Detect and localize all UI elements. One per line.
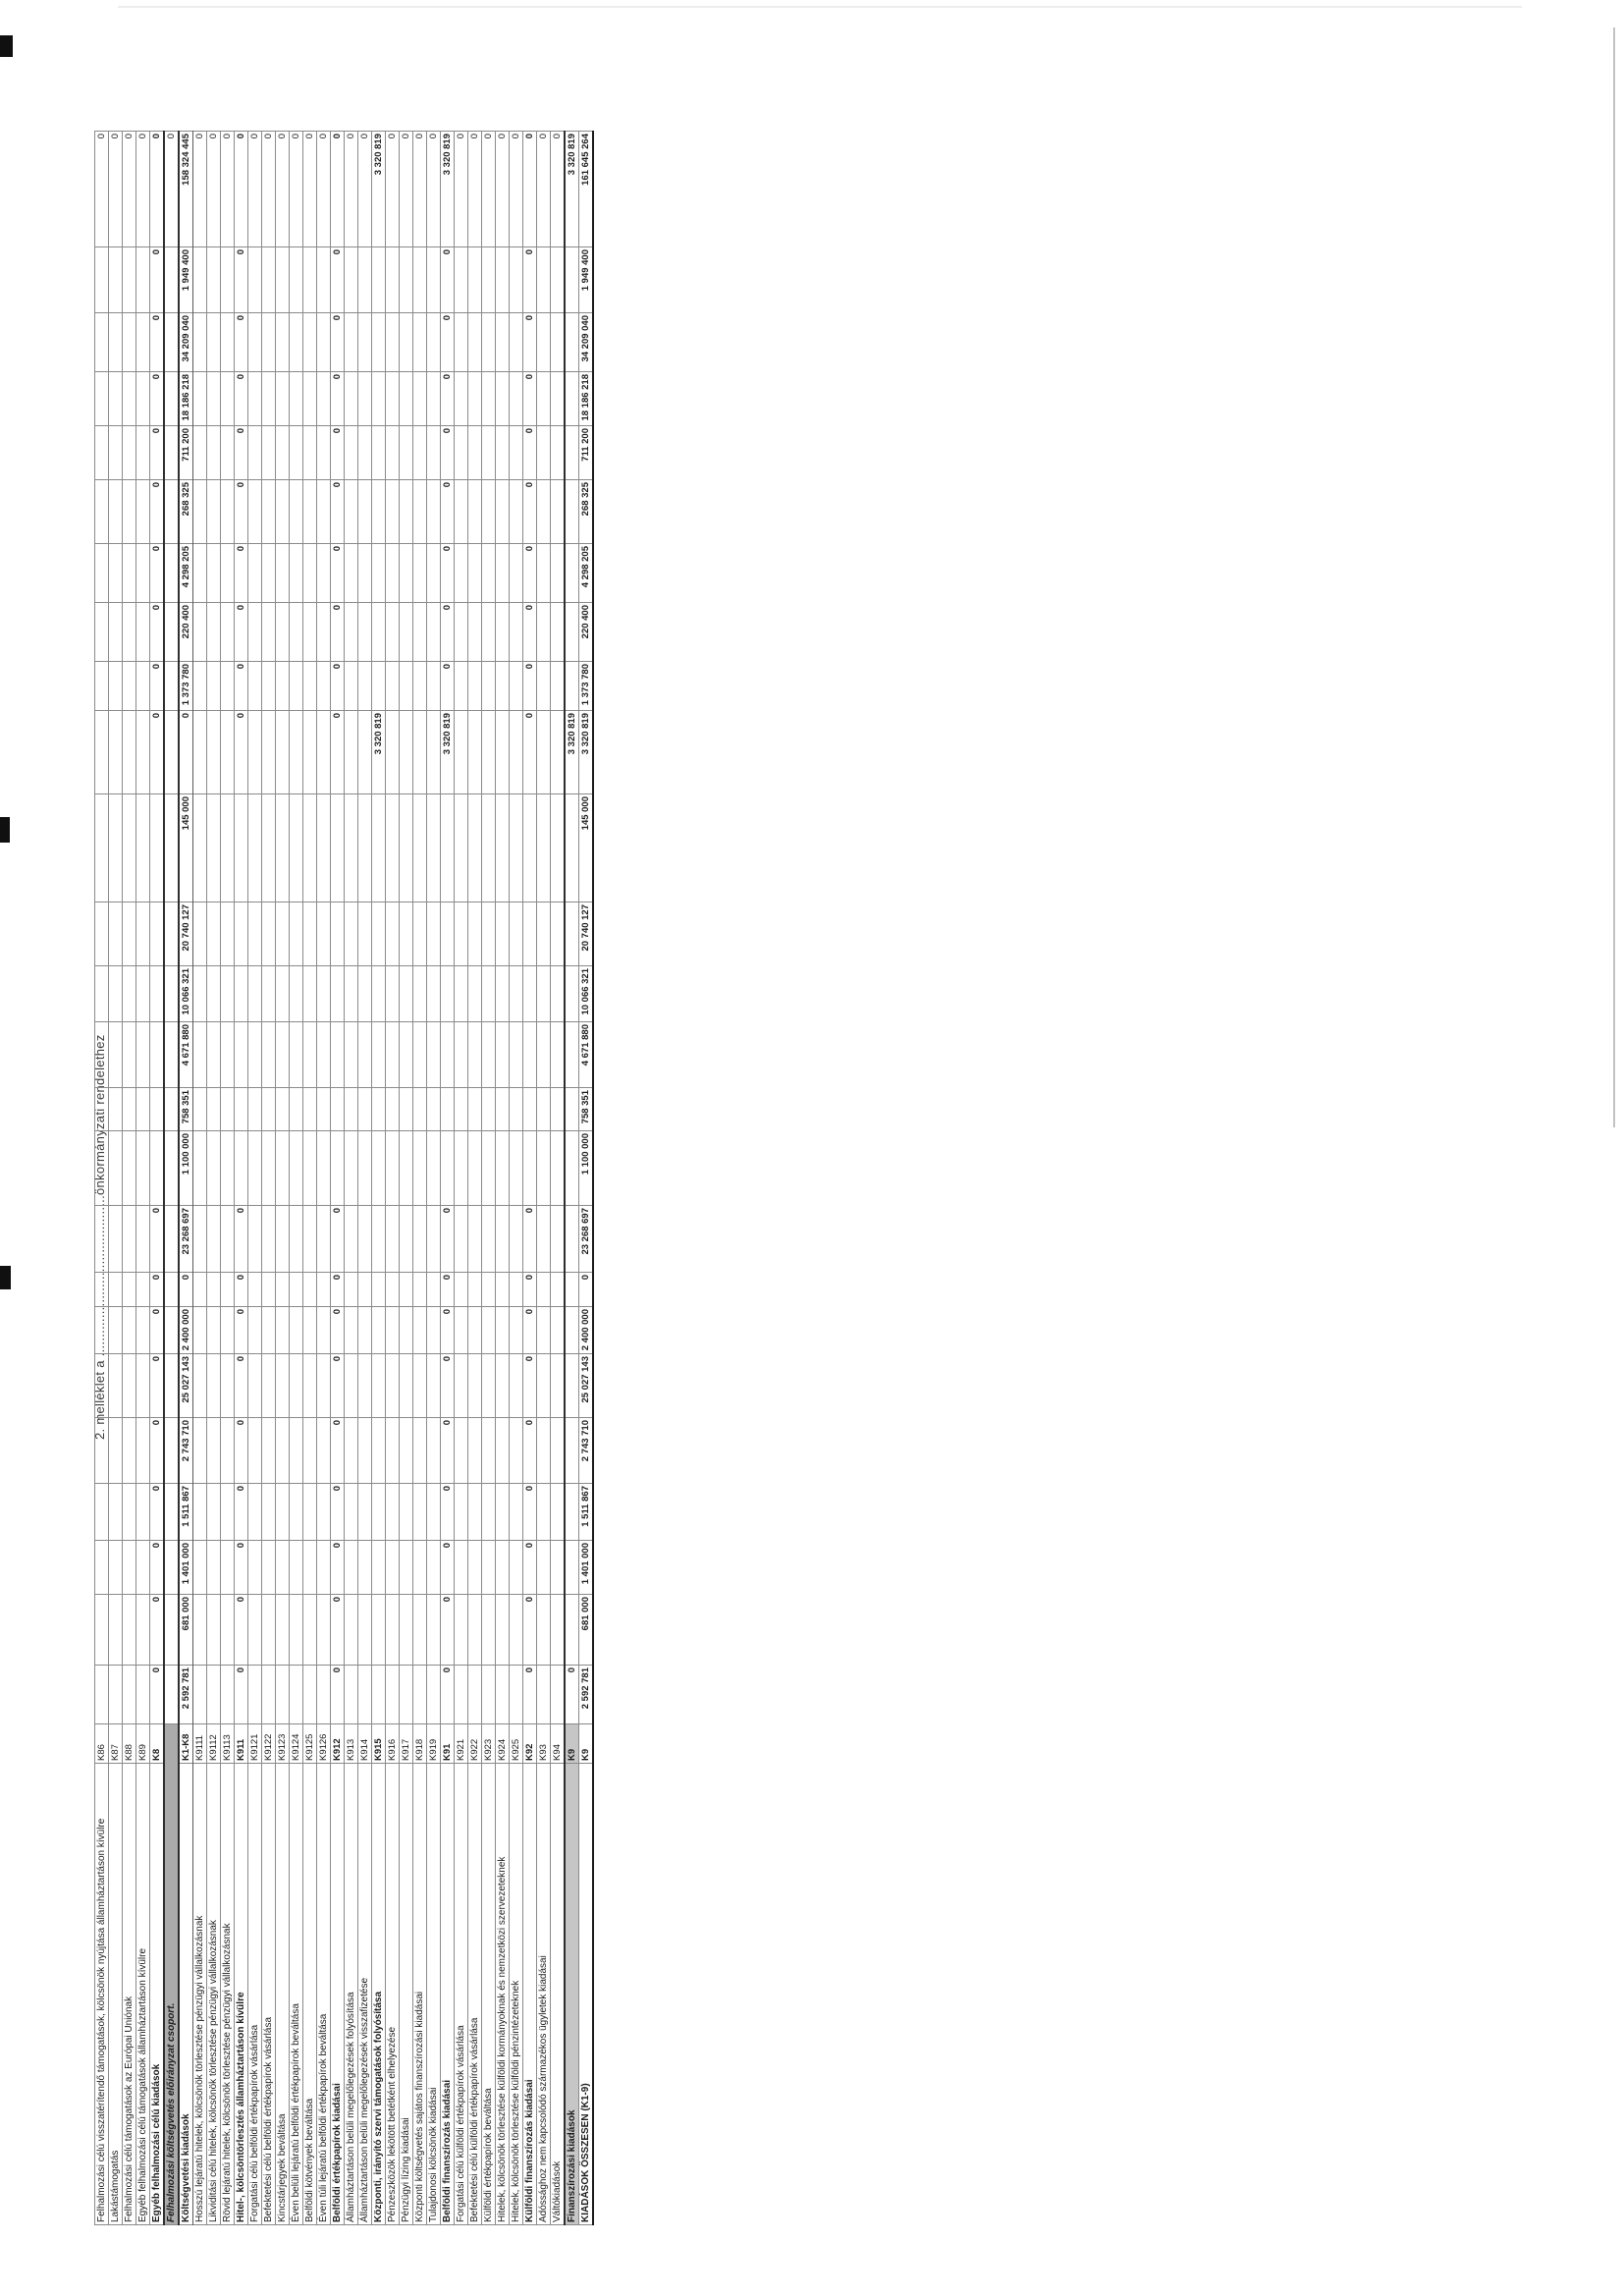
amount-cell bbox=[372, 1206, 386, 1273]
amount-cell: 2 743 710 bbox=[179, 1418, 193, 1484]
amount-cell bbox=[537, 662, 551, 711]
amount-cell bbox=[95, 372, 109, 426]
amount-cell bbox=[248, 1354, 262, 1418]
amount-cell bbox=[482, 794, 496, 902]
amount-cell bbox=[136, 372, 150, 426]
row-total-cell: 0 bbox=[551, 132, 566, 247]
amount-cell bbox=[455, 1666, 468, 1724]
amount-cell bbox=[164, 313, 179, 372]
amount-cell bbox=[386, 1541, 400, 1595]
amount-cell bbox=[496, 1484, 510, 1541]
amount-cell bbox=[468, 426, 482, 480]
amount-cell bbox=[193, 902, 207, 966]
amount-cell bbox=[358, 480, 372, 544]
amount-cell bbox=[109, 1273, 123, 1307]
amount-cell bbox=[193, 1541, 207, 1595]
row-code: K921 bbox=[455, 1724, 468, 1764]
amount-cell: 145 000 bbox=[579, 794, 594, 902]
amount-cell bbox=[468, 1273, 482, 1307]
row-label: Államháztartáson belüli megelőlegezések … bbox=[345, 1764, 358, 2225]
table-row: Finanszírozási kiadásokK903 320 8193 320… bbox=[565, 132, 579, 2225]
amount-cell bbox=[193, 603, 207, 662]
amount-cell bbox=[468, 247, 482, 313]
amount-cell bbox=[537, 1131, 551, 1206]
amount-cell bbox=[510, 603, 523, 662]
amount-cell bbox=[109, 313, 123, 372]
row-label: Befektetési célú belföldi értékpapírok v… bbox=[262, 1764, 276, 2225]
amount-cell bbox=[427, 662, 441, 711]
amount-cell bbox=[248, 711, 262, 794]
amount-cell bbox=[95, 1484, 109, 1541]
amount-cell bbox=[551, 1418, 566, 1484]
amount-cell bbox=[317, 1541, 331, 1595]
amount-cell bbox=[537, 1088, 551, 1131]
amount-cell: 0 bbox=[235, 711, 248, 794]
amount-cell bbox=[248, 1088, 262, 1131]
table-row: Felhalmozási költségvetés előirányzat cs… bbox=[164, 132, 179, 2225]
row-code: K917 bbox=[400, 1724, 413, 1764]
amount-cell bbox=[386, 1131, 400, 1206]
amount-cell bbox=[551, 794, 566, 902]
amount-cell bbox=[386, 544, 400, 603]
amount-cell bbox=[317, 1088, 331, 1131]
amount-cell bbox=[207, 1354, 221, 1418]
amount-cell bbox=[262, 1206, 276, 1273]
amount-cell bbox=[207, 1088, 221, 1131]
amount-cell bbox=[276, 1273, 290, 1307]
amount-cell bbox=[358, 662, 372, 711]
amount-cell bbox=[262, 1273, 276, 1307]
amount-cell bbox=[317, 1273, 331, 1307]
amount-cell bbox=[345, 1088, 358, 1131]
amount-cell bbox=[551, 544, 566, 603]
amount-cell bbox=[496, 603, 510, 662]
amount-cell bbox=[276, 711, 290, 794]
amount-cell: 0 bbox=[331, 426, 345, 480]
amount-cell bbox=[276, 1088, 290, 1131]
amount-cell bbox=[221, 1484, 235, 1541]
amount-cell bbox=[386, 1307, 400, 1354]
amount-cell: 0 bbox=[523, 1541, 537, 1595]
amount-cell bbox=[510, 794, 523, 902]
amount-cell bbox=[468, 1354, 482, 1418]
amount-cell bbox=[551, 1088, 566, 1131]
amount-cell bbox=[565, 426, 579, 480]
amount-cell bbox=[413, 1022, 427, 1088]
amount-cell bbox=[221, 1666, 235, 1724]
amount-cell bbox=[221, 480, 235, 544]
amount-cell bbox=[468, 902, 482, 966]
amount-cell: 0 bbox=[441, 1418, 455, 1484]
amount-cell bbox=[455, 313, 468, 372]
amount-cell bbox=[537, 247, 551, 313]
table-row: Államháztartáson belüli megelőlegezések … bbox=[358, 132, 372, 2225]
amount-cell bbox=[221, 662, 235, 711]
row-code: K87 bbox=[109, 1724, 123, 1764]
row-code: K1-K8 bbox=[179, 1724, 193, 1764]
amount-cell bbox=[262, 1484, 276, 1541]
amount-cell bbox=[136, 902, 150, 966]
amount-cell bbox=[262, 711, 276, 794]
amount-cell bbox=[276, 372, 290, 426]
row-label: Pénzügyi lízing kiadásai bbox=[400, 1764, 413, 2225]
amount-cell: 0 bbox=[331, 1418, 345, 1484]
amount-cell bbox=[551, 372, 566, 426]
amount-cell bbox=[482, 1206, 496, 1273]
amount-cell: 0 bbox=[523, 480, 537, 544]
amount-cell bbox=[164, 1022, 179, 1088]
amount-cell bbox=[565, 966, 579, 1022]
amount-cell: 1 401 000 bbox=[579, 1541, 594, 1595]
amount-cell: 4 671 880 bbox=[179, 1022, 193, 1088]
amount-cell: 0 bbox=[150, 1307, 165, 1354]
amount-cell bbox=[262, 1354, 276, 1418]
amount-cell bbox=[109, 426, 123, 480]
row-code: K86 bbox=[95, 1724, 109, 1764]
amount-cell bbox=[565, 1484, 579, 1541]
amount-cell bbox=[413, 313, 427, 372]
amount-cell bbox=[95, 902, 109, 966]
amount-cell bbox=[303, 794, 317, 902]
amount-cell bbox=[109, 662, 123, 711]
amount-cell bbox=[193, 1307, 207, 1354]
row-label: Tulajdonosi kölcsönök kiadásai bbox=[427, 1764, 441, 2225]
row-code: K88 bbox=[123, 1724, 136, 1764]
amount-cell bbox=[400, 1595, 413, 1666]
amount-cell: 0 bbox=[331, 313, 345, 372]
amount-cell: 3 320 819 bbox=[372, 711, 386, 794]
amount-cell: 1 401 000 bbox=[179, 1541, 193, 1595]
amount-cell bbox=[565, 1307, 579, 1354]
amount-cell: 0 bbox=[150, 372, 165, 426]
amount-cell bbox=[317, 544, 331, 603]
scan-artifact bbox=[0, 1266, 11, 1289]
amount-cell: 34 209 040 bbox=[179, 313, 193, 372]
amount-cell: 2 400 000 bbox=[179, 1307, 193, 1354]
row-code: K9124 bbox=[290, 1724, 303, 1764]
amount-cell bbox=[537, 1666, 551, 1724]
row-code: K9 bbox=[565, 1724, 579, 1764]
amount-cell bbox=[290, 1022, 303, 1088]
amount-cell bbox=[400, 603, 413, 662]
amount-cell: 20 740 127 bbox=[179, 902, 193, 966]
amount-cell bbox=[358, 794, 372, 902]
amount-cell: 0 bbox=[331, 1541, 345, 1595]
amount-cell bbox=[123, 794, 136, 902]
amount-cell bbox=[262, 1307, 276, 1354]
amount-cell bbox=[358, 1354, 372, 1418]
amount-cell bbox=[551, 1484, 566, 1541]
amount-cell bbox=[551, 247, 566, 313]
amount-cell bbox=[136, 426, 150, 480]
amount-cell bbox=[164, 603, 179, 662]
amount-cell bbox=[565, 1273, 579, 1307]
amount-cell bbox=[496, 480, 510, 544]
amount-cell bbox=[468, 1206, 482, 1273]
amount-cell: 0 bbox=[150, 544, 165, 603]
row-total-cell: 0 bbox=[317, 132, 331, 247]
amount-cell bbox=[345, 1022, 358, 1088]
amount-cell bbox=[136, 794, 150, 902]
amount-cell bbox=[372, 1418, 386, 1484]
amount-cell bbox=[510, 1131, 523, 1206]
row-code: K93 bbox=[537, 1724, 551, 1764]
amount-cell bbox=[537, 544, 551, 603]
amount-cell bbox=[372, 426, 386, 480]
amount-cell bbox=[386, 1354, 400, 1418]
amount-cell bbox=[468, 1595, 482, 1666]
row-total-cell: 0 bbox=[468, 132, 482, 247]
amount-cell: 0 bbox=[235, 662, 248, 711]
amount-cell bbox=[400, 426, 413, 480]
amount-cell: 0 bbox=[179, 1273, 193, 1307]
amount-cell bbox=[358, 966, 372, 1022]
amount-cell bbox=[109, 902, 123, 966]
amount-cell bbox=[109, 794, 123, 902]
amount-cell: 0 bbox=[441, 313, 455, 372]
row-total-cell: 0 bbox=[496, 132, 510, 247]
amount-cell bbox=[235, 1022, 248, 1088]
amount-cell bbox=[317, 711, 331, 794]
amount-cell: 0 bbox=[331, 1354, 345, 1418]
amount-cell bbox=[358, 603, 372, 662]
amount-cell bbox=[235, 1088, 248, 1131]
amount-cell bbox=[551, 1022, 566, 1088]
row-total-cell: 0 bbox=[413, 132, 427, 247]
amount-cell bbox=[95, 603, 109, 662]
table-row: Felhalmozási célú támogatások az Európai… bbox=[123, 132, 136, 2225]
amount-cell bbox=[221, 372, 235, 426]
amount-cell bbox=[372, 544, 386, 603]
row-label: Likviditási célú hitelek, kölcsönök törl… bbox=[207, 1764, 221, 2225]
amount-cell: 0 bbox=[523, 1273, 537, 1307]
amount-cell: 0 bbox=[235, 426, 248, 480]
amount-cell bbox=[221, 1541, 235, 1595]
amount-cell bbox=[413, 966, 427, 1022]
amount-cell: 711 200 bbox=[179, 426, 193, 480]
amount-cell bbox=[455, 966, 468, 1022]
row-code: K924 bbox=[496, 1724, 510, 1764]
amount-cell bbox=[496, 1595, 510, 1666]
amount-cell bbox=[207, 544, 221, 603]
amount-cell bbox=[317, 426, 331, 480]
amount-cell: 0 bbox=[235, 544, 248, 603]
amount-cell: 0 bbox=[523, 313, 537, 372]
amount-cell bbox=[276, 1131, 290, 1206]
amount-cell: 0 bbox=[441, 426, 455, 480]
amount-cell bbox=[510, 1595, 523, 1666]
amount-cell bbox=[136, 603, 150, 662]
amount-cell bbox=[482, 902, 496, 966]
table-row: Hitelek, kölcsönök törlesztése külföldi … bbox=[510, 132, 523, 2225]
amount-cell bbox=[164, 1273, 179, 1307]
row-code: K92 bbox=[523, 1724, 537, 1764]
amount-cell: 2 743 710 bbox=[579, 1418, 594, 1484]
amount-cell bbox=[317, 372, 331, 426]
amount-cell bbox=[496, 1206, 510, 1273]
amount-cell bbox=[95, 1666, 109, 1724]
amount-cell bbox=[303, 902, 317, 966]
amount-cell: 0 bbox=[579, 1273, 594, 1307]
row-label: Forgatási célú belföldi értékpapírok vás… bbox=[248, 1764, 262, 2225]
amount-cell bbox=[565, 1541, 579, 1595]
amount-cell bbox=[400, 1418, 413, 1484]
amount-cell bbox=[276, 966, 290, 1022]
amount-cell bbox=[468, 313, 482, 372]
amount-cell bbox=[400, 966, 413, 1022]
amount-cell bbox=[482, 1131, 496, 1206]
amount-cell bbox=[136, 544, 150, 603]
amount-cell bbox=[565, 480, 579, 544]
amount-cell bbox=[193, 711, 207, 794]
amount-cell bbox=[290, 1088, 303, 1131]
amount-cell bbox=[345, 247, 358, 313]
amount-cell bbox=[468, 1484, 482, 1541]
amount-cell: 0 bbox=[331, 480, 345, 544]
amount-cell: 0 bbox=[441, 544, 455, 603]
amount-cell bbox=[193, 544, 207, 603]
amount-cell bbox=[193, 313, 207, 372]
amount-cell bbox=[109, 1666, 123, 1724]
row-total-cell: 0 bbox=[537, 132, 551, 247]
amount-cell: 0 bbox=[441, 1354, 455, 1418]
table-row: Központi költségvetés sajátos finanszíro… bbox=[413, 132, 427, 2225]
amount-cell bbox=[386, 1595, 400, 1666]
amount-cell: 0 bbox=[331, 662, 345, 711]
amount-cell bbox=[95, 966, 109, 1022]
amount-cell bbox=[372, 1595, 386, 1666]
amount-cell bbox=[123, 372, 136, 426]
amount-cell bbox=[358, 1206, 372, 1273]
amount-cell bbox=[482, 1484, 496, 1541]
amount-cell bbox=[400, 902, 413, 966]
amount-cell bbox=[455, 711, 468, 794]
row-total-cell: 0 bbox=[123, 132, 136, 247]
amount-cell bbox=[123, 1354, 136, 1418]
row-code: K94 bbox=[551, 1724, 566, 1764]
amount-cell: 1 511 867 bbox=[579, 1484, 594, 1541]
amount-cell bbox=[496, 544, 510, 603]
amount-cell bbox=[290, 902, 303, 966]
amount-cell bbox=[551, 966, 566, 1022]
amount-cell: 0 bbox=[523, 544, 537, 603]
amount-cell bbox=[372, 794, 386, 902]
amount-cell bbox=[468, 1418, 482, 1484]
amount-cell bbox=[123, 1206, 136, 1273]
amount-cell bbox=[413, 1131, 427, 1206]
amount-cell: 0 bbox=[523, 1307, 537, 1354]
amount-cell bbox=[317, 1595, 331, 1666]
amount-cell bbox=[468, 794, 482, 902]
amount-cell bbox=[386, 711, 400, 794]
amount-cell bbox=[400, 1307, 413, 1354]
amount-cell bbox=[164, 1541, 179, 1595]
amount-cell bbox=[136, 1206, 150, 1273]
amount-cell bbox=[455, 247, 468, 313]
amount-cell bbox=[455, 1307, 468, 1354]
amount-cell bbox=[565, 247, 579, 313]
amount-cell bbox=[164, 1595, 179, 1666]
amount-cell: 0 bbox=[441, 247, 455, 313]
amount-cell bbox=[455, 1088, 468, 1131]
row-total-cell: 0 bbox=[427, 132, 441, 247]
amount-cell bbox=[248, 372, 262, 426]
amount-cell bbox=[290, 1354, 303, 1418]
amount-cell bbox=[372, 1484, 386, 1541]
amount-cell bbox=[95, 313, 109, 372]
amount-cell bbox=[303, 544, 317, 603]
amount-cell bbox=[221, 711, 235, 794]
amount-cell: 758 351 bbox=[179, 1088, 193, 1131]
amount-cell: 0 bbox=[150, 480, 165, 544]
amount-cell bbox=[510, 1666, 523, 1724]
amount-cell bbox=[413, 1418, 427, 1484]
amount-cell bbox=[358, 1666, 372, 1724]
table-row: VáltókiadásokK940 bbox=[551, 132, 566, 2225]
amount-cell bbox=[372, 1273, 386, 1307]
amount-cell: 0 bbox=[235, 603, 248, 662]
amount-cell: 268 325 bbox=[579, 480, 594, 544]
amount-cell bbox=[482, 711, 496, 794]
amount-cell bbox=[317, 1484, 331, 1541]
amount-cell bbox=[386, 794, 400, 902]
amount-cell bbox=[537, 313, 551, 372]
amount-cell: 758 351 bbox=[579, 1088, 594, 1131]
amount-cell bbox=[468, 544, 482, 603]
amount-cell bbox=[386, 1206, 400, 1273]
amount-cell bbox=[345, 313, 358, 372]
row-label: Éven túli lejáratú belföldi értékpapírok… bbox=[317, 1764, 331, 2225]
amount-cell bbox=[455, 603, 468, 662]
amount-cell bbox=[372, 902, 386, 966]
row-label: Lakástámogatás bbox=[109, 1764, 123, 2225]
amount-cell bbox=[248, 966, 262, 1022]
amount-cell bbox=[276, 662, 290, 711]
amount-cell bbox=[413, 603, 427, 662]
amount-cell bbox=[372, 1666, 386, 1724]
amount-cell bbox=[413, 1541, 427, 1595]
row-label: Kincstárjegyek beváltása bbox=[276, 1764, 290, 2225]
amount-cell: 0 bbox=[331, 711, 345, 794]
amount-cell bbox=[207, 711, 221, 794]
amount-cell bbox=[455, 1541, 468, 1595]
amount-cell bbox=[193, 1666, 207, 1724]
amount-cell: 0 bbox=[441, 1206, 455, 1273]
table-row: Befektetési célú külföldi értékpapírok v… bbox=[468, 132, 482, 2225]
amount-cell: 0 bbox=[523, 247, 537, 313]
amount-cell: 0 bbox=[441, 603, 455, 662]
amount-cell bbox=[523, 902, 537, 966]
amount-cell bbox=[345, 711, 358, 794]
amount-cell bbox=[441, 902, 455, 966]
amount-cell bbox=[207, 662, 221, 711]
row-code: K8 bbox=[150, 1724, 165, 1764]
amount-cell bbox=[221, 1418, 235, 1484]
amount-cell bbox=[413, 544, 427, 603]
amount-cell bbox=[427, 603, 441, 662]
amount-cell bbox=[400, 794, 413, 902]
amount-cell bbox=[193, 662, 207, 711]
amount-cell bbox=[276, 1354, 290, 1418]
table-row: Belföldi értékpapírok kiadásaiK912000000… bbox=[331, 132, 345, 2225]
amount-cell bbox=[248, 1666, 262, 1724]
amount-cell bbox=[496, 966, 510, 1022]
amount-cell bbox=[565, 1418, 579, 1484]
table-row: Egyéb felhalmozási célú támogatások álla… bbox=[136, 132, 150, 2225]
amount-cell bbox=[345, 480, 358, 544]
amount-cell bbox=[317, 662, 331, 711]
amount-cell bbox=[427, 1088, 441, 1131]
